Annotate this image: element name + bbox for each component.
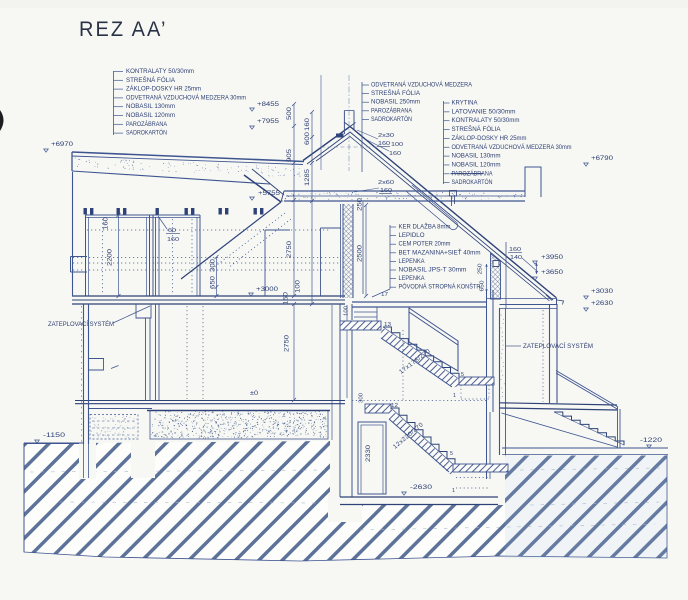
svg-text:100: 100 [344, 306, 350, 316]
svg-text:500: 500 [287, 106, 293, 120]
svg-text:905: 905 [287, 148, 293, 162]
svg-text:ZATEPLOVACÍ SYSTÉM: ZATEPLOVACÍ SYSTÉM [48, 319, 114, 328]
svg-text:STREŠNÁ FÓLIA: STREŠNÁ FÓLIA [371, 88, 421, 97]
svg-text:-1220: -1220 [640, 437, 663, 444]
svg-text:160: 160 [104, 216, 110, 230]
svg-text:17: 17 [381, 292, 388, 298]
svg-text:160: 160 [305, 117, 311, 131]
svg-text:CEM POTER 20mm: CEM POTER 20mm [399, 241, 451, 248]
svg-text:140: 140 [510, 255, 522, 261]
svg-text:-2630: -2630 [410, 484, 433, 491]
svg-text:±0: ±0 [250, 390, 259, 397]
svg-text:ODVETRANÁ VZDUCHOVÁ MEDZERA 30: ODVETRANÁ VZDUCHOVÁ MEDZERA 30mm [452, 142, 572, 151]
svg-text:PAROZÁBRANA: PAROZÁBRANA [452, 168, 493, 177]
svg-text:BET MAZANINA+SIEŤ 40mm: BET MAZANINA+SIEŤ 40mm [399, 247, 481, 256]
svg-text:150: 150 [284, 291, 290, 305]
svg-text:NOBASIL JPS-T 30mm: NOBASIL JPS-T 30mm [399, 267, 467, 274]
svg-text:600: 600 [305, 131, 311, 145]
svg-text:STREŠNÁ FÓLIA: STREŠNÁ FÓLIA [452, 124, 502, 133]
svg-text:SADROKARTÓN: SADROKARTÓN [126, 128, 167, 137]
svg-text:ODVETRANÁ VZDUCHOVÁ MEDZERA 30: ODVETRANÁ VZDUCHOVÁ MEDZERA 30mm [126, 92, 246, 101]
svg-text:PAROZÁBRANA: PAROZÁBRANA [126, 119, 167, 128]
svg-text:100: 100 [296, 279, 302, 293]
svg-text:2200: 2200 [108, 248, 114, 266]
svg-text:NOBASIL 120mm: NOBASIL 120mm [452, 161, 501, 168]
svg-text:60: 60 [168, 228, 176, 234]
svg-text:KRYTINA: KRYTINA [452, 100, 479, 107]
svg-text:LEPIDLO: LEPIDLO [399, 232, 425, 239]
svg-text:13: 13 [384, 322, 391, 328]
svg-text:+2630: +2630 [591, 300, 614, 307]
svg-text:SADROKARTÓN: SADROKARTÓN [452, 177, 493, 186]
svg-text:LEPENKA: LEPENKA [399, 275, 426, 282]
svg-text:2x30: 2x30 [378, 133, 394, 139]
svg-text:160: 160 [389, 151, 401, 157]
svg-text:NOBASIL 120mm: NOBASIL 120mm [126, 112, 175, 119]
svg-text:+6970: +6970 [51, 141, 74, 148]
svg-text:ODVETRANÁ VZDUCHOVÁ MEDZERA: ODVETRANÁ VZDUCHOVÁ MEDZERA [371, 80, 473, 89]
svg-text:2500: 2500 [358, 244, 364, 262]
svg-text:+3030: +3030 [591, 288, 614, 295]
svg-text:KONTRALATY 50/30mm: KONTRALATY 50/30mm [126, 68, 194, 75]
svg-text:2x60: 2x60 [378, 180, 394, 186]
svg-text:2750: 2750 [285, 334, 291, 352]
svg-text:2750: 2750 [287, 240, 293, 258]
svg-text:ZÁKLOP-DOSKY HR 25mm: ZÁKLOP-DOSKY HR 25mm [452, 133, 527, 142]
svg-text:ZÁKLOP-DOSKY HR 25mm: ZÁKLOP-DOSKY HR 25mm [126, 84, 201, 93]
svg-text:REZ AA’: REZ AA’ [79, 18, 168, 42]
svg-text:160: 160 [509, 247, 521, 253]
svg-text:250: 250 [478, 264, 484, 275]
svg-text:2330: 2330 [366, 444, 372, 462]
svg-text:+3000: +3000 [256, 286, 279, 293]
svg-text:NOBASIL 250mm: NOBASIL 250mm [371, 99, 420, 106]
svg-text:12: 12 [391, 403, 398, 409]
svg-text:ZATEPLOVACÍ SYSTÉM: ZATEPLOVACÍ SYSTÉM [523, 341, 593, 350]
svg-text:+5755: +5755 [258, 190, 281, 197]
svg-text:1285: 1285 [305, 168, 311, 186]
svg-text:300: 300 [211, 258, 217, 272]
svg-text:KONTRALATY 50/30mm: KONTRALATY 50/30mm [452, 117, 520, 124]
svg-text:STREŠNÁ FÓLIA: STREŠNÁ FÓLIA [126, 75, 176, 84]
svg-text:160: 160 [167, 237, 179, 243]
svg-text:KER DLAŽBA 8mm: KER DLAŽBA 8mm [399, 222, 451, 231]
svg-text:250: 250 [358, 197, 364, 211]
svg-text:LATOVANIE 50/30mm: LATOVANIE 50/30mm [452, 108, 516, 115]
svg-text:5: 5 [450, 451, 453, 457]
svg-text:SADROKARTÓN: SADROKARTÓN [371, 114, 412, 123]
svg-text:300: 300 [359, 393, 365, 403]
svg-text:NOBASIL 130mm: NOBASIL 130mm [452, 153, 501, 160]
svg-text:+3650: +3650 [541, 269, 564, 276]
svg-text:160: 160 [380, 188, 392, 194]
svg-text:100: 100 [391, 142, 403, 148]
svg-text:650: 650 [211, 275, 217, 289]
svg-text:NOBASIL 130mm: NOBASIL 130mm [126, 103, 175, 110]
svg-text:5: 5 [461, 372, 464, 378]
svg-text:+7955: +7955 [257, 118, 280, 125]
svg-text:1: 1 [453, 393, 456, 399]
svg-text:PÔVODNÁ STROPNÁ KONŠTR: PÔVODNÁ STROPNÁ KONŠTR [399, 282, 481, 291]
svg-text:1: 1 [452, 488, 455, 494]
svg-text:+6790: +6790 [591, 155, 614, 162]
svg-text:-1150: -1150 [43, 432, 66, 439]
svg-text:+8455: +8455 [257, 101, 280, 108]
svg-text:PAROZÁBRANA: PAROZÁBRANA [371, 105, 412, 114]
svg-text:LEPENKA: LEPENKA [399, 258, 426, 265]
svg-text:+3950: +3950 [541, 254, 564, 261]
